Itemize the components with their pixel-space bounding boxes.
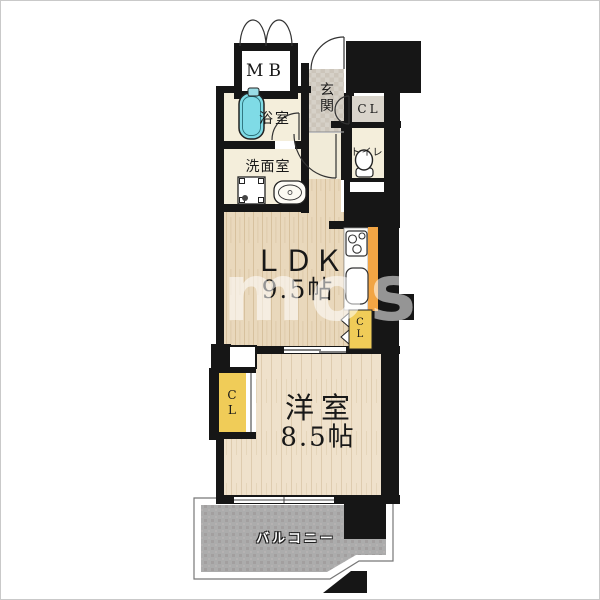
bedroom-notch-box	[229, 346, 256, 368]
kitchen-counter-edge	[368, 227, 378, 311]
washer-drain-dot	[242, 195, 248, 201]
bath-faucet-icon	[248, 88, 259, 96]
mb-interior	[242, 51, 290, 91]
wall-bath-wash-divider	[223, 141, 275, 149]
stove-icon	[346, 231, 367, 256]
wall-wash-bottom	[216, 204, 308, 212]
floorplan-drawing	[1, 1, 600, 600]
pipe-space-box	[349, 181, 385, 193]
wall-bedroom-cl-bottom	[209, 432, 256, 439]
wall-left-main	[216, 86, 224, 348]
hall-floor	[309, 179, 341, 214]
wall-hall-toilet-divider	[341, 128, 352, 180]
floorplan-image: MB 玄関 CL トイレ 浴室 洗面室 ＬＤＫ 9.5帖 洋室 8.5帖 CL …	[0, 0, 600, 600]
mb-door-arc-left	[240, 20, 266, 46]
wall-bedroom-right	[381, 351, 399, 504]
ldk-closet-fill	[349, 310, 372, 349]
wall-bedroom-cl-left	[209, 368, 219, 440]
wall-bedroom-left-lower	[216, 438, 224, 504]
entrance-door-arc	[311, 37, 344, 70]
mb-door-arc-right	[266, 20, 292, 46]
entrance-closet-fill	[352, 96, 384, 122]
wall-balcony-block	[344, 501, 386, 539]
kitchen-sink-icon	[346, 268, 368, 304]
bedroom-closet-fill	[219, 373, 246, 432]
wall-top-right-block	[346, 41, 421, 93]
wall-kitchen-top-stub	[329, 221, 346, 229]
toilet-icon	[356, 150, 373, 170]
